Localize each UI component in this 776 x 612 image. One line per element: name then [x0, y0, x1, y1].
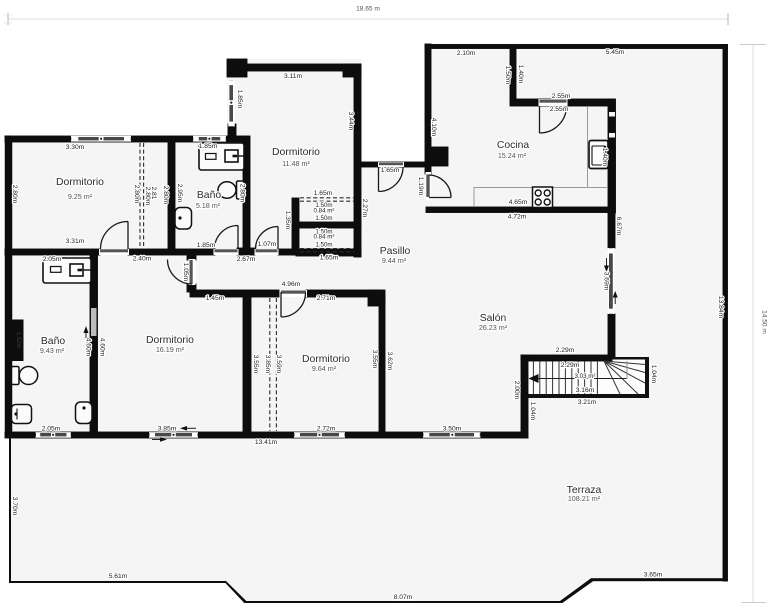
svg-text:1.35m: 1.35m	[284, 211, 291, 230]
svg-text:4.65m: 4.65m	[509, 199, 528, 206]
svg-text:2.67m: 2.67m	[237, 256, 256, 263]
svg-text:2.05m: 2.05m	[43, 256, 62, 263]
svg-text:1.50m: 1.50m	[504, 66, 511, 85]
svg-text:2.05m: 2.05m	[42, 426, 61, 433]
svg-text:9.43 m²: 9.43 m²	[40, 346, 65, 355]
svg-text:16.19 m²: 16.19 m²	[156, 345, 185, 354]
svg-text:3.30m: 3.30m	[66, 144, 85, 151]
svg-text:2.71m: 2.71m	[317, 295, 336, 302]
svg-text:3.55m: 3.55m	[252, 355, 259, 374]
svg-text:3.31m: 3.31m	[66, 238, 85, 245]
svg-text:3.21m: 3.21m	[578, 399, 597, 406]
svg-text:3.85m: 3.85m	[264, 355, 271, 374]
svg-text:18.65 m: 18.65 m	[356, 6, 380, 13]
svg-text:3.44m: 3.44m	[347, 112, 354, 131]
svg-text:3.85m: 3.85m	[158, 426, 177, 433]
svg-text:Cocina: Cocina	[497, 140, 530, 151]
svg-text:2.95m: 2.95m	[176, 184, 183, 203]
svg-text:1.50m: 1.50m	[315, 242, 332, 249]
svg-text:2.10m: 2.10m	[457, 50, 476, 57]
svg-text:1.85m: 1.85m	[236, 90, 243, 109]
svg-text:4.60m: 4.60m	[99, 338, 106, 357]
svg-text:2.81: 2.81	[150, 186, 157, 199]
svg-text:13.84m: 13.84m	[717, 296, 724, 319]
svg-text:2.29m: 2.29m	[561, 362, 580, 369]
svg-text:2.80m: 2.80m	[162, 186, 169, 205]
svg-text:3.65m: 3.65m	[644, 572, 663, 579]
svg-text:2.29m: 2.29m	[556, 347, 575, 354]
svg-text:Baño: Baño	[197, 190, 221, 201]
svg-text:2.55m: 2.55m	[550, 106, 569, 113]
svg-text:1.65m: 1.65m	[320, 255, 339, 262]
svg-text:14.50 m: 14.50 m	[761, 310, 768, 334]
svg-text:3.59m: 3.59m	[275, 355, 282, 374]
svg-text:3.69m: 3.69m	[603, 272, 610, 291]
svg-text:0.84 m²: 0.84 m²	[314, 234, 335, 241]
svg-text:Dormitorio: Dormitorio	[272, 147, 320, 158]
svg-text:1.05m: 1.05m	[182, 263, 189, 282]
svg-text:2.55m: 2.55m	[552, 93, 571, 100]
svg-text:3.16m: 3.16m	[576, 387, 595, 394]
svg-text:1.52m: 1.52m	[15, 332, 21, 349]
svg-text:3.50m: 3.50m	[443, 426, 462, 433]
svg-text:2.40m: 2.40m	[133, 256, 152, 263]
svg-text:1.85m: 1.85m	[197, 242, 216, 249]
svg-text:15.24 m²: 15.24 m²	[498, 151, 527, 160]
svg-text:5.45m: 5.45m	[606, 49, 625, 56]
svg-text:1.65m: 1.65m	[314, 190, 333, 197]
svg-text:2.80m: 2.80m	[144, 187, 151, 206]
svg-text:108.21 m²: 108.21 m²	[568, 494, 601, 503]
svg-text:4.72m: 4.72m	[508, 214, 527, 221]
svg-text:1.65m: 1.65m	[381, 167, 400, 174]
svg-text:9.25 m²: 9.25 m²	[68, 192, 93, 201]
svg-text:1.19m: 1.19m	[417, 177, 424, 196]
svg-text:2.72m: 2.72m	[317, 426, 336, 433]
svg-text:26.23 m²: 26.23 m²	[479, 323, 508, 332]
svg-text:1.85m: 1.85m	[199, 143, 218, 150]
svg-text:6.67m: 6.67m	[615, 217, 622, 236]
svg-text:1.04m: 1.04m	[529, 402, 536, 421]
svg-text:1.04m: 1.04m	[650, 365, 657, 384]
svg-text:2.80m: 2.80m	[133, 185, 140, 204]
svg-text:3.55m: 3.55m	[371, 350, 378, 369]
svg-text:3.11m: 3.11m	[284, 73, 303, 80]
svg-text:4.96m: 4.96m	[282, 281, 301, 288]
svg-text:1.45m: 1.45m	[206, 295, 225, 302]
svg-text:5.18 m²: 5.18 m²	[196, 201, 221, 210]
svg-text:2.80m: 2.80m	[11, 185, 18, 204]
svg-text:0.84 m²: 0.84 m²	[314, 207, 335, 214]
svg-text:4.10m: 4.10m	[430, 118, 437, 137]
svg-text:2.27m: 2.27m	[361, 199, 368, 218]
svg-text:4.60m: 4.60m	[85, 338, 92, 357]
svg-text:9.64 m²: 9.64 m²	[312, 364, 337, 373]
svg-text:1.40m: 1.40m	[517, 65, 524, 84]
svg-text:3.70m: 3.70m	[11, 497, 18, 516]
svg-text:8.07m: 8.07m	[394, 594, 413, 601]
svg-text:3.03 m²: 3.03 m²	[575, 373, 596, 380]
svg-text:1.40m: 1.40m	[601, 148, 608, 167]
svg-text:13.41m: 13.41m	[255, 439, 278, 446]
svg-text:2.80m: 2.80m	[239, 184, 246, 203]
svg-text:3.62m: 3.62m	[386, 352, 393, 371]
svg-text:1.50m: 1.50m	[315, 215, 332, 222]
svg-text:11.48 m²: 11.48 m²	[282, 159, 310, 168]
svg-text:2.00m: 2.00m	[513, 381, 520, 400]
svg-text:Dormitorio: Dormitorio	[56, 177, 104, 188]
svg-text:9.44 m²: 9.44 m²	[382, 256, 407, 265]
svg-text:1.07m: 1.07m	[258, 241, 277, 248]
svg-text:5.61m: 5.61m	[109, 573, 128, 580]
